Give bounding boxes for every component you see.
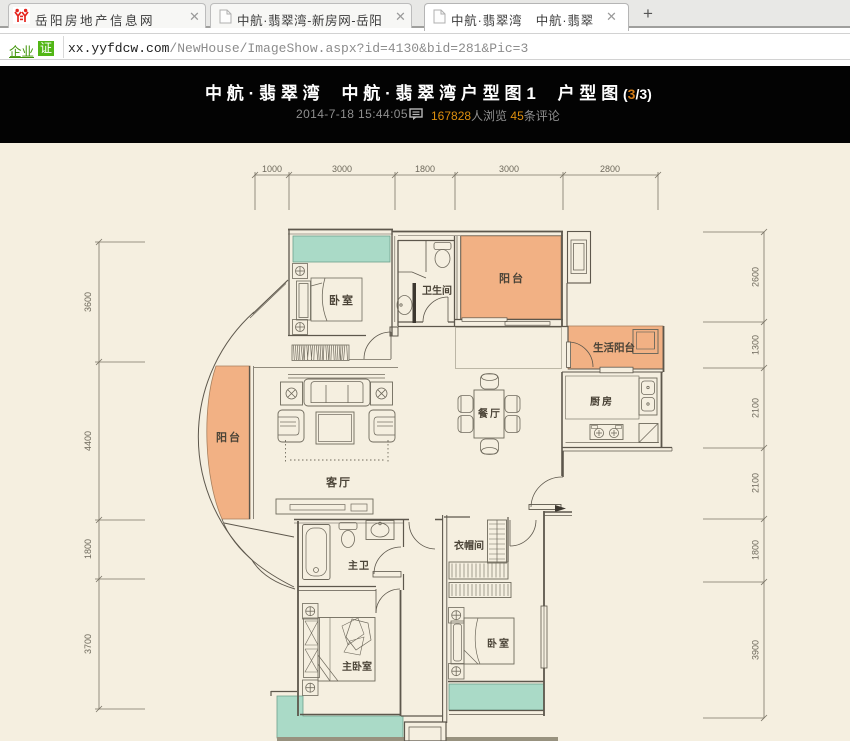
svg-text:2800: 2800 (600, 164, 620, 174)
svg-text:4400: 4400 (83, 431, 93, 451)
svg-text:2100: 2100 (751, 398, 761, 418)
svg-text:主卧室: 主卧室 (342, 660, 372, 673)
svg-text:3000: 3000 (332, 164, 352, 174)
svg-text:厨房: 厨房 (590, 395, 614, 408)
svg-text:客厅: 客厅 (325, 475, 352, 489)
svg-text:生活阳台: 生活阳台 (593, 341, 635, 354)
svg-text:主卫: 主卫 (348, 559, 370, 572)
svg-text:3700: 3700 (83, 634, 93, 654)
svg-text:2600: 2600 (751, 267, 761, 287)
svg-text:卫生间: 卫生间 (422, 284, 452, 297)
svg-text:餐厅: 餐厅 (477, 407, 502, 420)
svg-text:阳台: 阳台 (216, 430, 242, 444)
svg-text:1800: 1800 (415, 164, 435, 174)
svg-text:1800: 1800 (751, 540, 761, 560)
svg-text:衣帽间: 衣帽间 (454, 539, 484, 552)
svg-text:2100: 2100 (751, 473, 761, 493)
svg-text:1800: 1800 (83, 539, 93, 559)
svg-text:卧室: 卧室 (487, 637, 511, 650)
svg-text:1300: 1300 (751, 335, 761, 355)
svg-text:阳台: 阳台 (499, 271, 525, 285)
svg-text:3000: 3000 (499, 164, 519, 174)
svg-text:3900: 3900 (751, 640, 761, 660)
svg-text:3600: 3600 (83, 292, 93, 312)
svg-text:1000: 1000 (262, 164, 282, 174)
svg-text:卧室: 卧室 (329, 293, 355, 307)
